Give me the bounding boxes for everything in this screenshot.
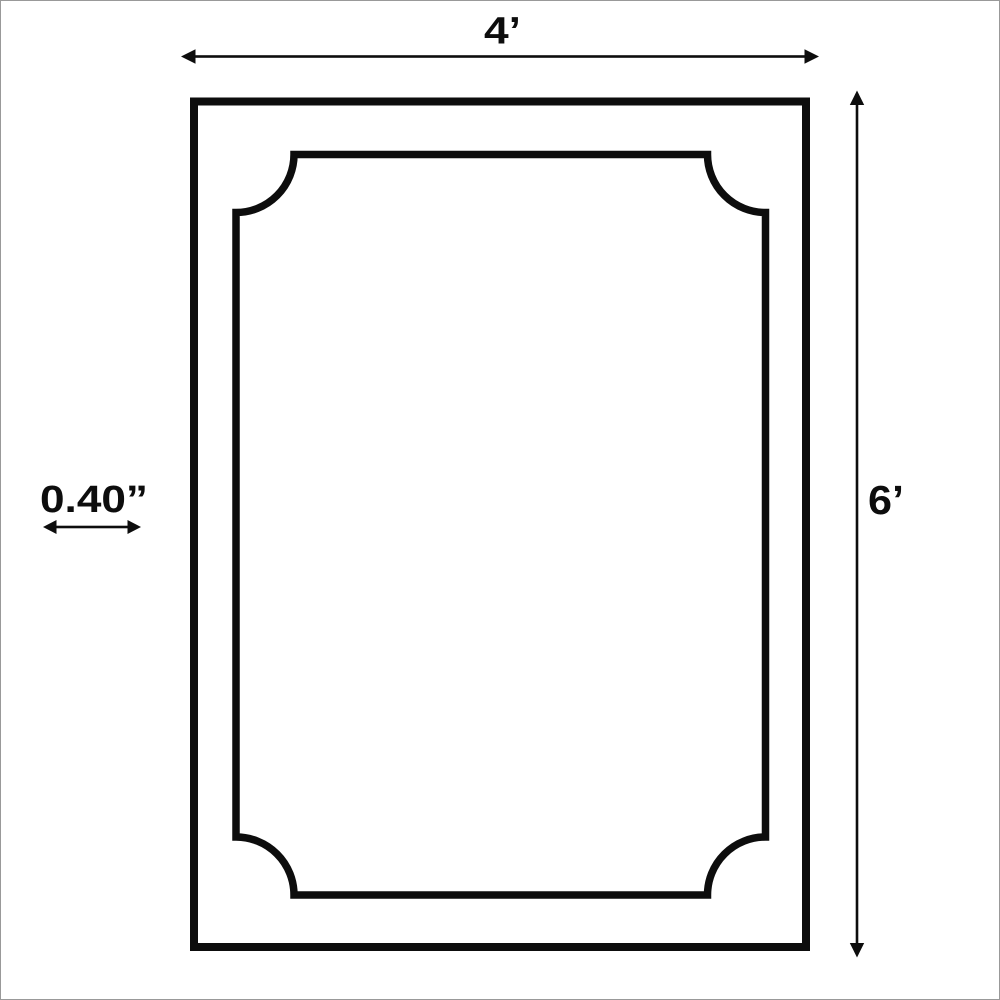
svg-text:0.40”: 0.40”: [40, 479, 148, 521]
svg-text:4’: 4’: [484, 11, 521, 53]
svg-text:6’: 6’: [868, 477, 904, 523]
